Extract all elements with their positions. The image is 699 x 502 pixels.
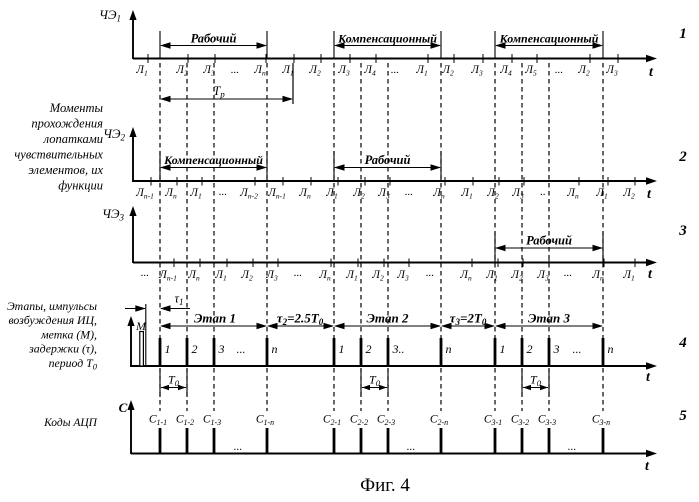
svg-text:3..: 3.. — [392, 342, 405, 356]
svg-text:...: ... — [564, 267, 572, 279]
svg-text:2: 2 — [527, 342, 533, 356]
svg-text:2: 2 — [678, 149, 687, 165]
svg-text:...: ... — [237, 342, 246, 356]
svg-text:...: ... — [573, 342, 582, 356]
svg-text:С: С — [119, 400, 128, 415]
svg-text:Рабочий: Рабочий — [365, 153, 411, 167]
svg-text:Коды АЦП: Коды АЦП — [43, 417, 98, 429]
svg-text:...: ... — [555, 64, 563, 76]
svg-text:..: .. — [540, 186, 546, 198]
svg-text:3: 3 — [218, 342, 225, 356]
svg-text:1: 1 — [339, 342, 345, 356]
svg-text:2: 2 — [192, 342, 198, 356]
svg-text:Рабочий: Рабочий — [526, 234, 572, 248]
svg-text:М: М — [135, 319, 147, 333]
svg-text:2: 2 — [366, 342, 372, 356]
svg-text:Фиг. 4: Фиг. 4 — [360, 475, 410, 496]
svg-text:τ3=2Т0: τ3=2Т0 — [450, 311, 487, 328]
svg-text:задержки (τ),: задержки (τ), — [28, 342, 97, 356]
svg-text:Этап 1: Этап 1 — [194, 311, 236, 326]
svg-text:...: ... — [405, 186, 413, 198]
svg-text:n: n — [446, 342, 452, 356]
svg-text:Этап 2: Этап 2 — [366, 311, 409, 326]
svg-text:Этап 3: Этап 3 — [528, 311, 571, 326]
svg-text:...: ... — [231, 64, 239, 76]
svg-text:Этапы, импульсы: Этапы, импульсы — [7, 299, 97, 313]
svg-text:лопатками: лопатками — [43, 132, 103, 146]
svg-text:Рабочий: Рабочий — [191, 32, 237, 46]
svg-text:...: ... — [391, 64, 399, 76]
svg-text:...: ... — [294, 267, 302, 279]
svg-text:метка (М),: метка (М), — [40, 327, 97, 341]
svg-text:...: ... — [141, 267, 149, 279]
svg-text:1: 1 — [500, 342, 506, 356]
svg-text:n: n — [272, 342, 278, 356]
svg-text:...: ... — [219, 186, 227, 198]
svg-text:прохождения: прохождения — [31, 117, 103, 131]
svg-text:функции: функции — [58, 179, 103, 193]
svg-text:возбуждения ИЦ,: возбуждения ИЦ, — [8, 313, 97, 327]
svg-text:...: ... — [407, 441, 416, 453]
svg-text:...: ... — [426, 267, 434, 279]
svg-text:...: ... — [234, 441, 243, 453]
svg-text:1: 1 — [679, 26, 687, 42]
svg-text:1: 1 — [165, 342, 171, 356]
svg-text:Компенсационный: Компенсационный — [163, 153, 263, 167]
svg-text:период Т0: период Т0 — [49, 356, 98, 372]
svg-text:3: 3 — [553, 342, 560, 356]
svg-text:...: ... — [568, 441, 577, 453]
svg-text:5: 5 — [679, 408, 687, 424]
svg-text:элементов, их: элементов, их — [28, 163, 103, 177]
svg-text:n: n — [608, 342, 614, 356]
svg-text:4: 4 — [678, 335, 687, 351]
svg-text:Компенсационный: Компенсационный — [337, 32, 437, 46]
svg-text:Моменты: Моменты — [49, 101, 104, 115]
svg-text:3: 3 — [678, 223, 687, 239]
svg-text:чувствительных: чувствительных — [14, 148, 103, 162]
svg-text:Компенсационный: Компенсационный — [499, 32, 599, 46]
